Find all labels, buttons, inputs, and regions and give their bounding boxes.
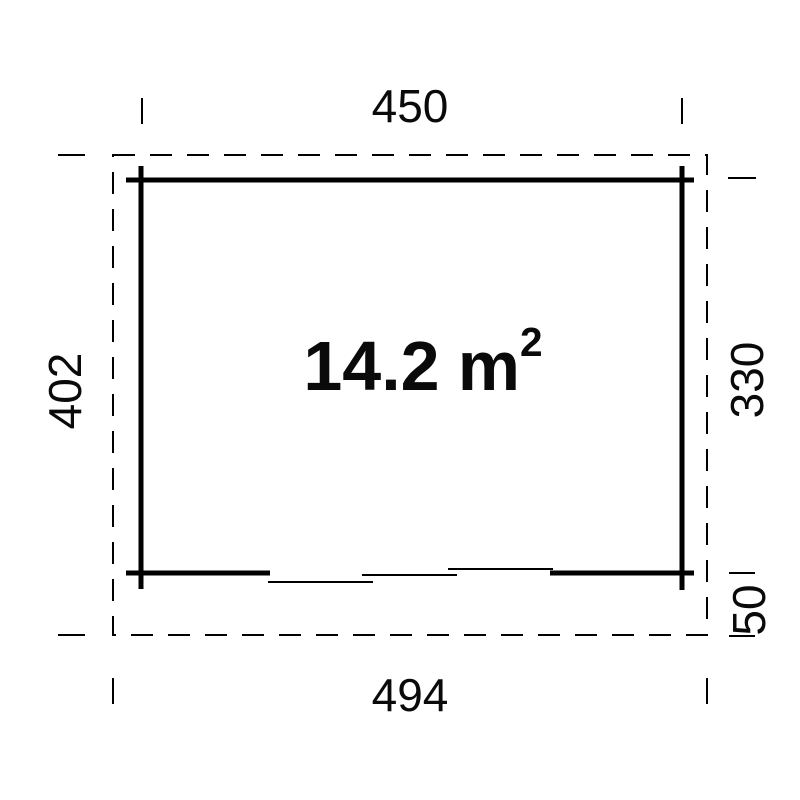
floor-plan-canvas: 450 402 330 50 494 14.2m2: [0, 0, 800, 800]
area-exponent: 2: [520, 319, 543, 365]
area-value: 14.2: [303, 327, 439, 405]
dimension-label-right-height: 330: [724, 342, 770, 419]
area-unit: m: [458, 327, 520, 405]
dimension-label-left-height: 402: [42, 353, 88, 430]
dimension-label-right-lower-offset: 50: [726, 584, 772, 635]
dimension-label-top-width: 450: [372, 83, 449, 129]
area-label: 14.2m2: [303, 331, 542, 401]
dimension-label-bottom-width: 494: [372, 672, 449, 718]
